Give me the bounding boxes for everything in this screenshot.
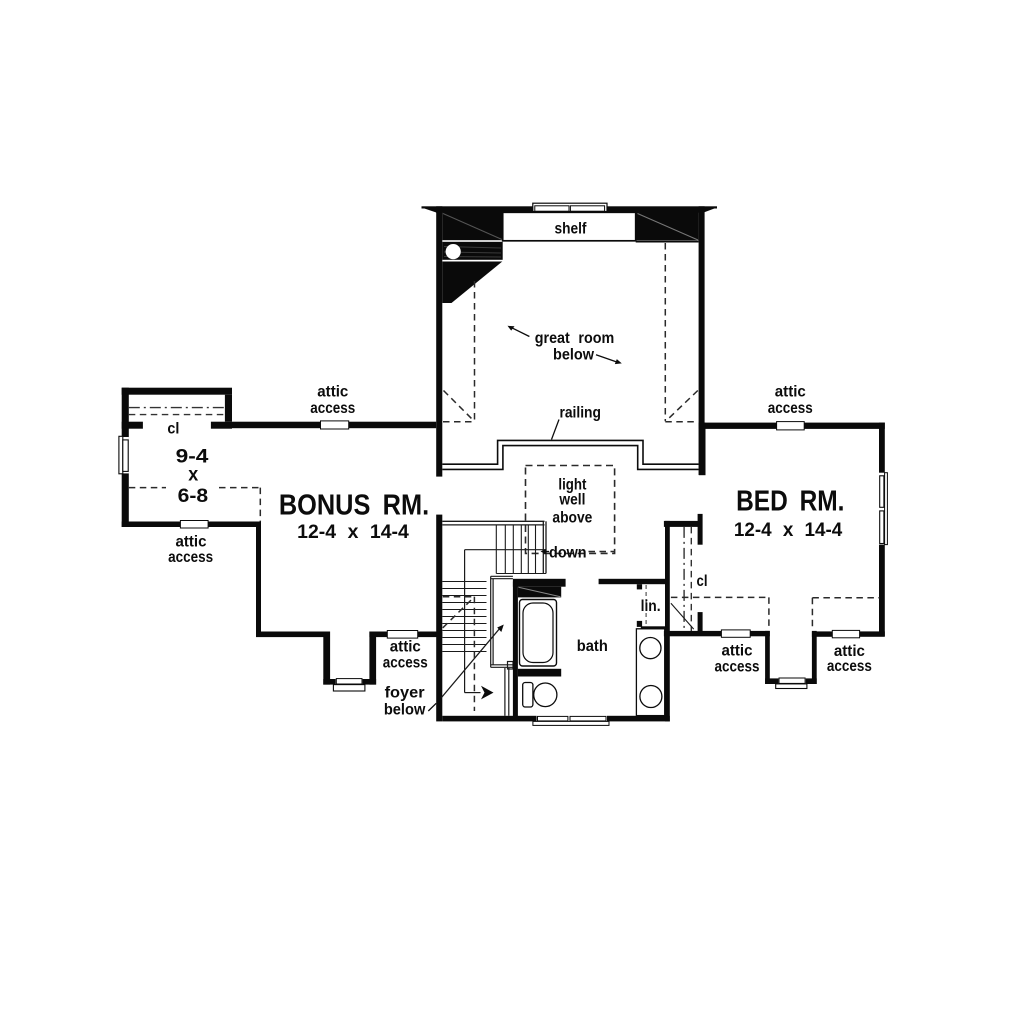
svg-text:foyer: foyer xyxy=(385,685,425,702)
svg-text:access: access xyxy=(715,658,760,675)
svg-text:well: well xyxy=(559,492,586,509)
svg-text:access: access xyxy=(168,549,213,566)
svg-text:12-4 x 14-4: 12-4 x 14-4 xyxy=(297,522,409,543)
svg-text:attic: attic xyxy=(390,639,421,656)
svg-text:attic: attic xyxy=(317,384,348,401)
svg-text:access: access xyxy=(768,400,813,417)
svg-text:railing: railing xyxy=(559,405,601,422)
svg-text:down: down xyxy=(549,544,587,561)
svg-text:lin.: lin. xyxy=(641,598,661,615)
svg-text:access: access xyxy=(383,654,428,671)
svg-text:access: access xyxy=(827,658,872,675)
svg-text:below: below xyxy=(384,702,426,719)
svg-text:above: above xyxy=(552,509,592,526)
svg-text:BED RM.: BED RM. xyxy=(736,485,844,517)
svg-text:attic: attic xyxy=(775,384,806,401)
svg-text:BONUS RM.: BONUS RM. xyxy=(279,489,429,521)
svg-text:attic: attic xyxy=(176,534,207,551)
svg-text:12-4 x 14-4: 12-4 x 14-4 xyxy=(734,520,843,541)
svg-text:cl: cl xyxy=(697,573,708,590)
svg-text:great room: great room xyxy=(535,330,615,347)
svg-text:shelf: shelf xyxy=(555,221,588,238)
svg-text:x: x xyxy=(188,465,198,486)
svg-text:below: below xyxy=(553,347,595,364)
svg-text:bath: bath xyxy=(577,638,608,655)
svg-text:6-8: 6-8 xyxy=(178,486,209,507)
svg-text:access: access xyxy=(310,400,355,417)
svg-text:cl: cl xyxy=(167,420,179,437)
svg-text:attic: attic xyxy=(722,642,753,659)
